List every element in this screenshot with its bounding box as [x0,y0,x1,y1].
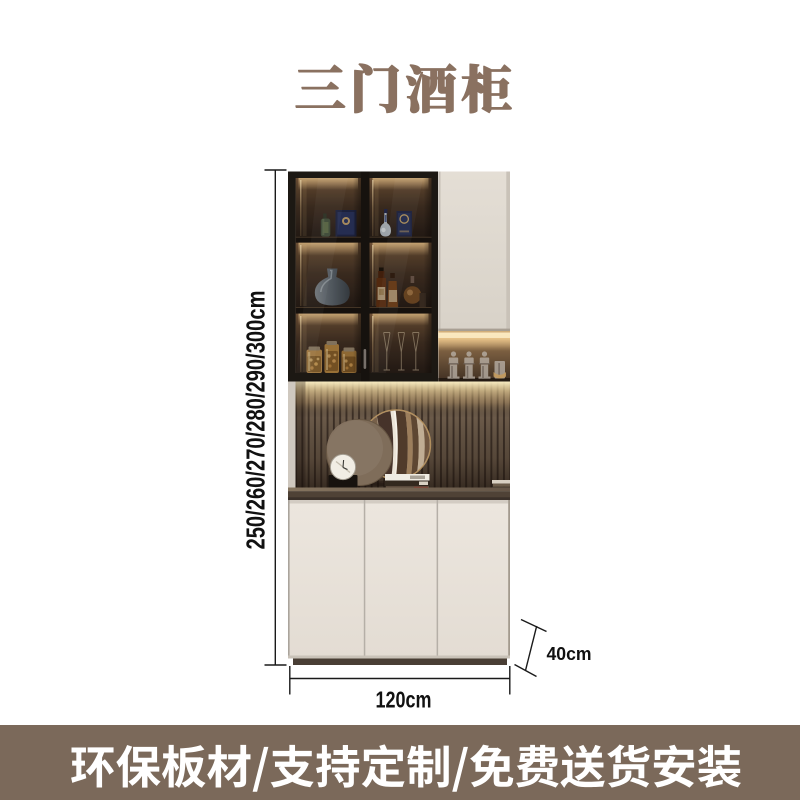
svg-text:250/260/270/280/290/300cm: 250/260/270/280/290/300cm [240,291,270,550]
svg-text:40cm: 40cm [547,644,592,664]
svg-text:120cm: 120cm [376,687,432,713]
